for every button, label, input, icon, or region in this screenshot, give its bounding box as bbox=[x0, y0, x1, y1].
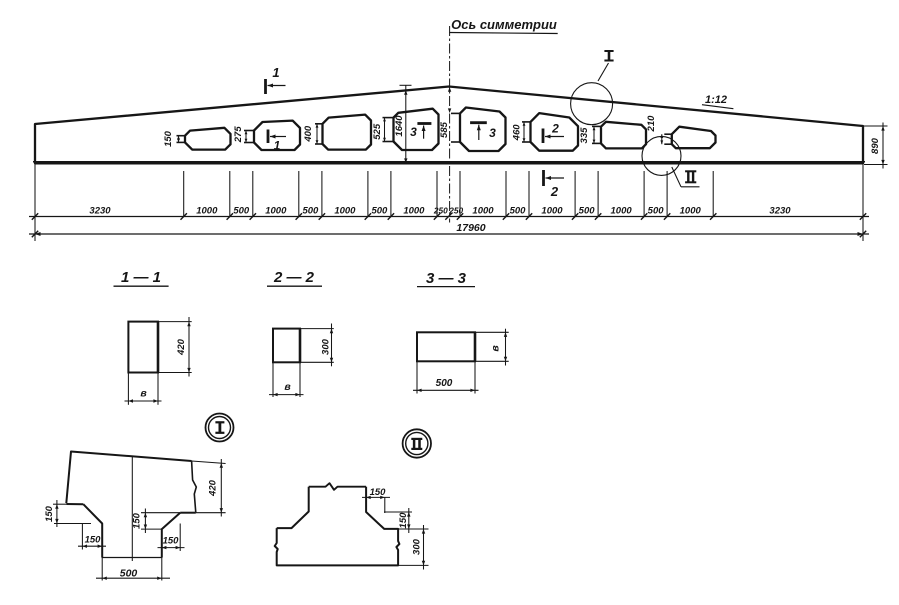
svg-text:1: 1 bbox=[274, 139, 281, 153]
svg-text:150: 150 bbox=[85, 535, 102, 546]
svg-text:1 — 1: 1 — 1 bbox=[121, 269, 161, 286]
svg-text:150: 150 bbox=[370, 487, 387, 498]
svg-text:500: 500 bbox=[371, 206, 388, 217]
svg-text:335: 335 bbox=[579, 127, 590, 144]
svg-text:500: 500 bbox=[648, 206, 665, 217]
svg-text:в: в bbox=[140, 388, 147, 400]
svg-text:500: 500 bbox=[510, 206, 527, 217]
svg-text:3230: 3230 bbox=[89, 206, 111, 217]
svg-text:420: 420 bbox=[208, 479, 219, 497]
svg-text:150: 150 bbox=[44, 505, 55, 522]
svg-text:2: 2 bbox=[551, 122, 559, 136]
svg-text:500: 500 bbox=[436, 378, 453, 389]
svg-text:150: 150 bbox=[132, 512, 143, 529]
svg-text:3 — 3: 3 — 3 bbox=[426, 270, 467, 287]
svg-text:275: 275 bbox=[233, 126, 244, 144]
svg-text:460: 460 bbox=[512, 124, 523, 142]
svg-text:400: 400 bbox=[303, 125, 314, 143]
svg-text:525: 525 bbox=[372, 123, 383, 140]
svg-text:1000: 1000 bbox=[196, 206, 218, 217]
svg-text:420: 420 bbox=[176, 338, 187, 356]
svg-text:890: 890 bbox=[870, 137, 881, 154]
svg-text:1000: 1000 bbox=[265, 206, 287, 217]
svg-text:1000: 1000 bbox=[611, 206, 633, 217]
svg-text:300: 300 bbox=[320, 338, 331, 355]
svg-text:500: 500 bbox=[120, 568, 138, 580]
svg-text:1000: 1000 bbox=[334, 206, 356, 217]
svg-text:в: в bbox=[284, 381, 291, 393]
svg-text:3: 3 bbox=[410, 125, 417, 139]
svg-text:500: 500 bbox=[233, 206, 250, 217]
svg-text:1000: 1000 bbox=[472, 206, 494, 217]
svg-text:2 — 2: 2 — 2 bbox=[273, 269, 315, 286]
svg-text:150: 150 bbox=[163, 130, 174, 147]
svg-text:в: в bbox=[490, 345, 502, 352]
svg-text:585: 585 bbox=[439, 121, 450, 138]
svg-text:500: 500 bbox=[579, 206, 596, 217]
svg-text:17960: 17960 bbox=[456, 222, 485, 234]
svg-text:3230: 3230 bbox=[769, 206, 791, 217]
svg-text:1000: 1000 bbox=[541, 206, 563, 217]
svg-text:150: 150 bbox=[163, 536, 180, 547]
svg-text:250: 250 bbox=[433, 206, 448, 216]
svg-text:1640: 1640 bbox=[394, 115, 405, 137]
svg-text:3: 3 bbox=[489, 126, 496, 140]
svg-text:Ось симметрии: Ось симметрии bbox=[451, 17, 557, 32]
svg-text:250: 250 bbox=[448, 206, 463, 216]
svg-text:1:12: 1:12 bbox=[705, 94, 727, 106]
svg-text:500: 500 bbox=[302, 206, 319, 217]
svg-text:1000: 1000 bbox=[403, 206, 425, 217]
svg-text:1000: 1000 bbox=[680, 206, 702, 217]
svg-text:150: 150 bbox=[398, 512, 409, 529]
svg-text:210: 210 bbox=[646, 115, 657, 133]
svg-text:1: 1 bbox=[272, 65, 279, 80]
svg-text:300: 300 bbox=[412, 538, 423, 555]
svg-text:2: 2 bbox=[550, 184, 559, 199]
